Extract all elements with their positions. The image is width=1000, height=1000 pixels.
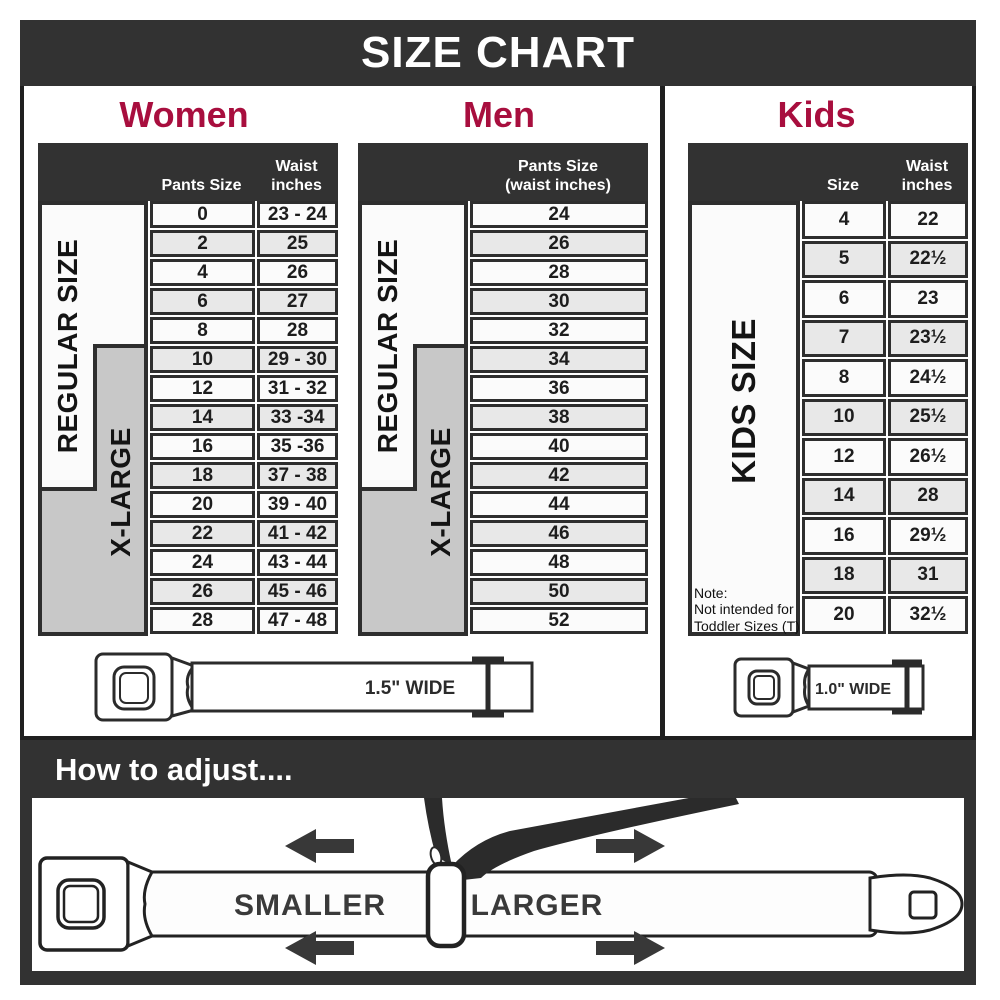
kids-table-body: 422522½623723½824½1025½1226½14281629½183… bbox=[800, 201, 968, 641]
table-cell: 44 bbox=[470, 491, 648, 518]
table-row: 2443 - 44 bbox=[150, 549, 338, 576]
table-row: 46 bbox=[470, 520, 648, 547]
table-row: 52 bbox=[470, 607, 648, 634]
kids-belt-illustration: 1.0" WIDE bbox=[725, 650, 955, 726]
header-spacer bbox=[358, 143, 468, 201]
table-cell: 18 bbox=[150, 462, 255, 489]
women-size-band: REGULAR SIZE X-LARGE bbox=[38, 201, 148, 641]
table-row: 28 bbox=[470, 259, 648, 286]
adult-belt-illustration: 1.5" WIDE bbox=[80, 650, 540, 726]
table-cell: 20 bbox=[150, 491, 255, 518]
table-cell: 32 bbox=[470, 317, 648, 344]
table-row: 42 bbox=[470, 462, 648, 489]
men-size-band: REGULAR SIZE X-LARGE bbox=[358, 201, 468, 641]
table-cell: 16 bbox=[150, 433, 255, 460]
table-cell: 6 bbox=[150, 288, 255, 315]
table-cell: 8 bbox=[802, 359, 886, 397]
table-cell: 26 bbox=[470, 230, 648, 257]
women-size-table: Pants Size Waist inches REGULAR SIZE X-L… bbox=[38, 143, 338, 641]
title-banner: SIZE CHART bbox=[20, 20, 976, 86]
kids-size-header: Size bbox=[800, 143, 886, 201]
kids-waist-header: Waist inches bbox=[886, 143, 968, 201]
table-cell: 16 bbox=[802, 517, 886, 555]
table-cell: 29½ bbox=[888, 517, 968, 555]
table-cell: 5 bbox=[802, 241, 886, 279]
adjust-belt-illustration: SMALLER LARGER bbox=[32, 798, 964, 971]
men-size-table: Pants Size (waist inches) REGULAR SIZE X… bbox=[358, 143, 648, 641]
adjust-illustration-panel: SMALLER LARGER bbox=[32, 798, 964, 971]
table-row: 24 bbox=[470, 201, 648, 228]
table-row: 023 - 24 bbox=[150, 201, 338, 228]
table-cell: 6 bbox=[802, 280, 886, 318]
table-cell: 14 bbox=[150, 404, 255, 431]
table-row: 36 bbox=[470, 375, 648, 402]
table-row: 2847 - 48 bbox=[150, 607, 338, 634]
table-row: 2645 - 46 bbox=[150, 578, 338, 605]
header-label: Pants Size bbox=[161, 177, 241, 195]
table-row: 48 bbox=[470, 549, 648, 576]
table-cell: 25 bbox=[257, 230, 338, 257]
table-row: 522½ bbox=[802, 241, 968, 279]
table-cell: 4 bbox=[802, 201, 886, 239]
table-row: 824½ bbox=[802, 359, 968, 397]
table-cell: 0 bbox=[150, 201, 255, 228]
xlarge-size-label: X-LARGE bbox=[425, 427, 457, 557]
header-label: inches bbox=[902, 177, 953, 195]
kids-size-label: KIDS SIZE bbox=[725, 318, 763, 484]
table-cell: 10 bbox=[802, 399, 886, 437]
table-row: 1231 - 32 bbox=[150, 375, 338, 402]
women-section-title: Women bbox=[34, 94, 334, 136]
women-waist-header: Waist inches bbox=[255, 143, 338, 201]
table-row: 1831 bbox=[802, 557, 968, 595]
table-row: 1635 -36 bbox=[150, 433, 338, 460]
table-row: 1428 bbox=[802, 478, 968, 516]
kids-note: Note: Not intended for Toddler Sizes (T) bbox=[694, 585, 800, 635]
table-cell: 22 bbox=[888, 201, 968, 239]
regular-size-label: REGULAR SIZE bbox=[372, 239, 404, 453]
seatbelt-buckle-icon bbox=[96, 654, 194, 720]
table-cell: 37 - 38 bbox=[257, 462, 338, 489]
seatbelt-buckle-icon bbox=[735, 659, 809, 716]
table-row: 1629½ bbox=[802, 517, 968, 555]
table-cell: 34 bbox=[470, 346, 648, 373]
kids-belt-width-label: 1.0" WIDE bbox=[815, 681, 891, 698]
table-cell: 39 - 40 bbox=[257, 491, 338, 518]
table-row: 225 bbox=[150, 230, 338, 257]
table-row: 34 bbox=[470, 346, 648, 373]
table-cell: 28 bbox=[257, 317, 338, 344]
header-spacer bbox=[688, 143, 800, 201]
table-cell: 50 bbox=[470, 578, 648, 605]
table-cell: 46 bbox=[470, 520, 648, 547]
kids-section-title: Kids bbox=[665, 94, 968, 136]
how-to-adjust-section: How to adjust.... bbox=[20, 740, 976, 985]
larger-label: LARGER bbox=[471, 889, 604, 922]
table-cell: 40 bbox=[470, 433, 648, 460]
table-row: 627 bbox=[150, 288, 338, 315]
table-row: 2039 - 40 bbox=[150, 491, 338, 518]
table-cell: 22 bbox=[150, 520, 255, 547]
header-label: (waist inches) bbox=[505, 177, 611, 195]
table-cell: 14 bbox=[802, 478, 886, 516]
table-cell: 45 - 46 bbox=[257, 578, 338, 605]
seatbelt-buckle-icon bbox=[40, 858, 152, 950]
women-pants-size-header: Pants Size bbox=[148, 143, 255, 201]
kids-section-divider bbox=[660, 86, 665, 736]
men-table-body: 242628303234363840424446485052 bbox=[468, 201, 648, 641]
table-row: 1029 - 30 bbox=[150, 346, 338, 373]
header-label: inches bbox=[271, 177, 322, 195]
header-label: Waist bbox=[906, 158, 948, 176]
kids-table-rows-wrap: KIDS SIZE Note: Not intended for Toddler… bbox=[688, 201, 968, 641]
smaller-label: SMALLER bbox=[234, 889, 386, 922]
note-line: Not intended for bbox=[694, 601, 800, 618]
table-row: 38 bbox=[470, 404, 648, 431]
chart-area: Women Men Kids Pants Size Waist inches bbox=[20, 86, 976, 740]
table-row: 2032½ bbox=[802, 596, 968, 634]
table-cell: 26 bbox=[150, 578, 255, 605]
table-cell: 31 - 32 bbox=[257, 375, 338, 402]
table-cell: 24½ bbox=[888, 359, 968, 397]
page-title: SIZE CHART bbox=[361, 28, 635, 78]
table-row: 1226½ bbox=[802, 438, 968, 476]
table-cell: 26 bbox=[257, 259, 338, 286]
table-cell: 23 bbox=[888, 280, 968, 318]
table-cell: 24 bbox=[470, 201, 648, 228]
table-cell: 29 - 30 bbox=[257, 346, 338, 373]
men-table-header: Pants Size (waist inches) bbox=[358, 143, 648, 201]
table-cell: 27 bbox=[257, 288, 338, 315]
women-table-body: 023 - 242254266278281029 - 301231 - 3214… bbox=[148, 201, 338, 641]
adult-belt-width-label: 1.5" WIDE bbox=[365, 678, 455, 699]
table-cell: 18 bbox=[802, 557, 886, 595]
header-label: Size bbox=[827, 177, 859, 195]
kids-size-table: Size Waist inches KIDS SIZE Note: Not in… bbox=[688, 143, 968, 641]
table-row: 422 bbox=[802, 201, 968, 239]
table-row: 723½ bbox=[802, 320, 968, 358]
table-row: 26 bbox=[470, 230, 648, 257]
table-cell: 48 bbox=[470, 549, 648, 576]
table-cell: 47 - 48 bbox=[257, 607, 338, 634]
table-row: 623 bbox=[802, 280, 968, 318]
header-label: Waist bbox=[275, 158, 317, 176]
table-cell: 23 - 24 bbox=[257, 201, 338, 228]
table-cell: 7 bbox=[802, 320, 886, 358]
women-table-rows-wrap: REGULAR SIZE X-LARGE 023 - 2422542662782… bbox=[38, 201, 338, 641]
table-cell: 4 bbox=[150, 259, 255, 286]
men-table-rows-wrap: REGULAR SIZE X-LARGE 2426283032343638404… bbox=[358, 201, 648, 641]
table-cell: 30 bbox=[470, 288, 648, 315]
belt-tip-icon bbox=[870, 875, 962, 933]
table-row: 1837 - 38 bbox=[150, 462, 338, 489]
table-cell: 41 - 42 bbox=[257, 520, 338, 547]
table-cell: 24 bbox=[150, 549, 255, 576]
how-to-adjust-title: How to adjust.... bbox=[55, 752, 293, 788]
table-cell: 10 bbox=[150, 346, 255, 373]
table-row: 1433 -34 bbox=[150, 404, 338, 431]
hand-icon bbox=[424, 798, 739, 880]
table-cell: 2 bbox=[150, 230, 255, 257]
table-cell: 38 bbox=[470, 404, 648, 431]
table-cell: 12 bbox=[802, 438, 886, 476]
men-pants-size-header: Pants Size (waist inches) bbox=[468, 143, 648, 201]
table-cell: 23½ bbox=[888, 320, 968, 358]
table-cell: 28 bbox=[470, 259, 648, 286]
men-section-title: Men bbox=[354, 94, 644, 136]
table-row: 828 bbox=[150, 317, 338, 344]
belt-slider bbox=[428, 864, 464, 946]
table-cell: 43 - 44 bbox=[257, 549, 338, 576]
women-table-header: Pants Size Waist inches bbox=[38, 143, 338, 201]
table-row: 44 bbox=[470, 491, 648, 518]
size-chart-sheet: SIZE CHART Women Men Kids Pants Size Wai… bbox=[0, 0, 1000, 1000]
table-row: 426 bbox=[150, 259, 338, 286]
header-label: Pants Size bbox=[518, 158, 598, 176]
table-cell: 8 bbox=[150, 317, 255, 344]
table-row: 40 bbox=[470, 433, 648, 460]
header-spacer bbox=[38, 143, 148, 201]
table-cell: 20 bbox=[802, 596, 886, 634]
table-row: 50 bbox=[470, 578, 648, 605]
table-cell: 32½ bbox=[888, 596, 968, 634]
table-row: 2241 - 42 bbox=[150, 520, 338, 547]
table-row: 1025½ bbox=[802, 399, 968, 437]
table-cell: 26½ bbox=[888, 438, 968, 476]
table-cell: 42 bbox=[470, 462, 648, 489]
table-cell: 25½ bbox=[888, 399, 968, 437]
kids-size-band: KIDS SIZE Note: Not intended for Toddler… bbox=[688, 201, 800, 641]
table-row: 32 bbox=[470, 317, 648, 344]
belt-strap bbox=[192, 663, 532, 711]
regular-size-label: REGULAR SIZE bbox=[52, 239, 84, 453]
kids-table-header: Size Waist inches bbox=[688, 143, 968, 201]
table-cell: 36 bbox=[470, 375, 648, 402]
xlarge-size-label: X-LARGE bbox=[105, 427, 137, 557]
table-cell: 35 -36 bbox=[257, 433, 338, 460]
table-cell: 28 bbox=[150, 607, 255, 634]
table-cell: 12 bbox=[150, 375, 255, 402]
table-cell: 22½ bbox=[888, 241, 968, 279]
table-cell: 33 -34 bbox=[257, 404, 338, 431]
table-cell: 52 bbox=[470, 607, 648, 634]
note-line: Toddler Sizes (T) bbox=[694, 618, 800, 635]
table-cell: 31 bbox=[888, 557, 968, 595]
table-cell: 28 bbox=[888, 478, 968, 516]
note-line: Note: bbox=[694, 585, 800, 602]
table-row: 30 bbox=[470, 288, 648, 315]
